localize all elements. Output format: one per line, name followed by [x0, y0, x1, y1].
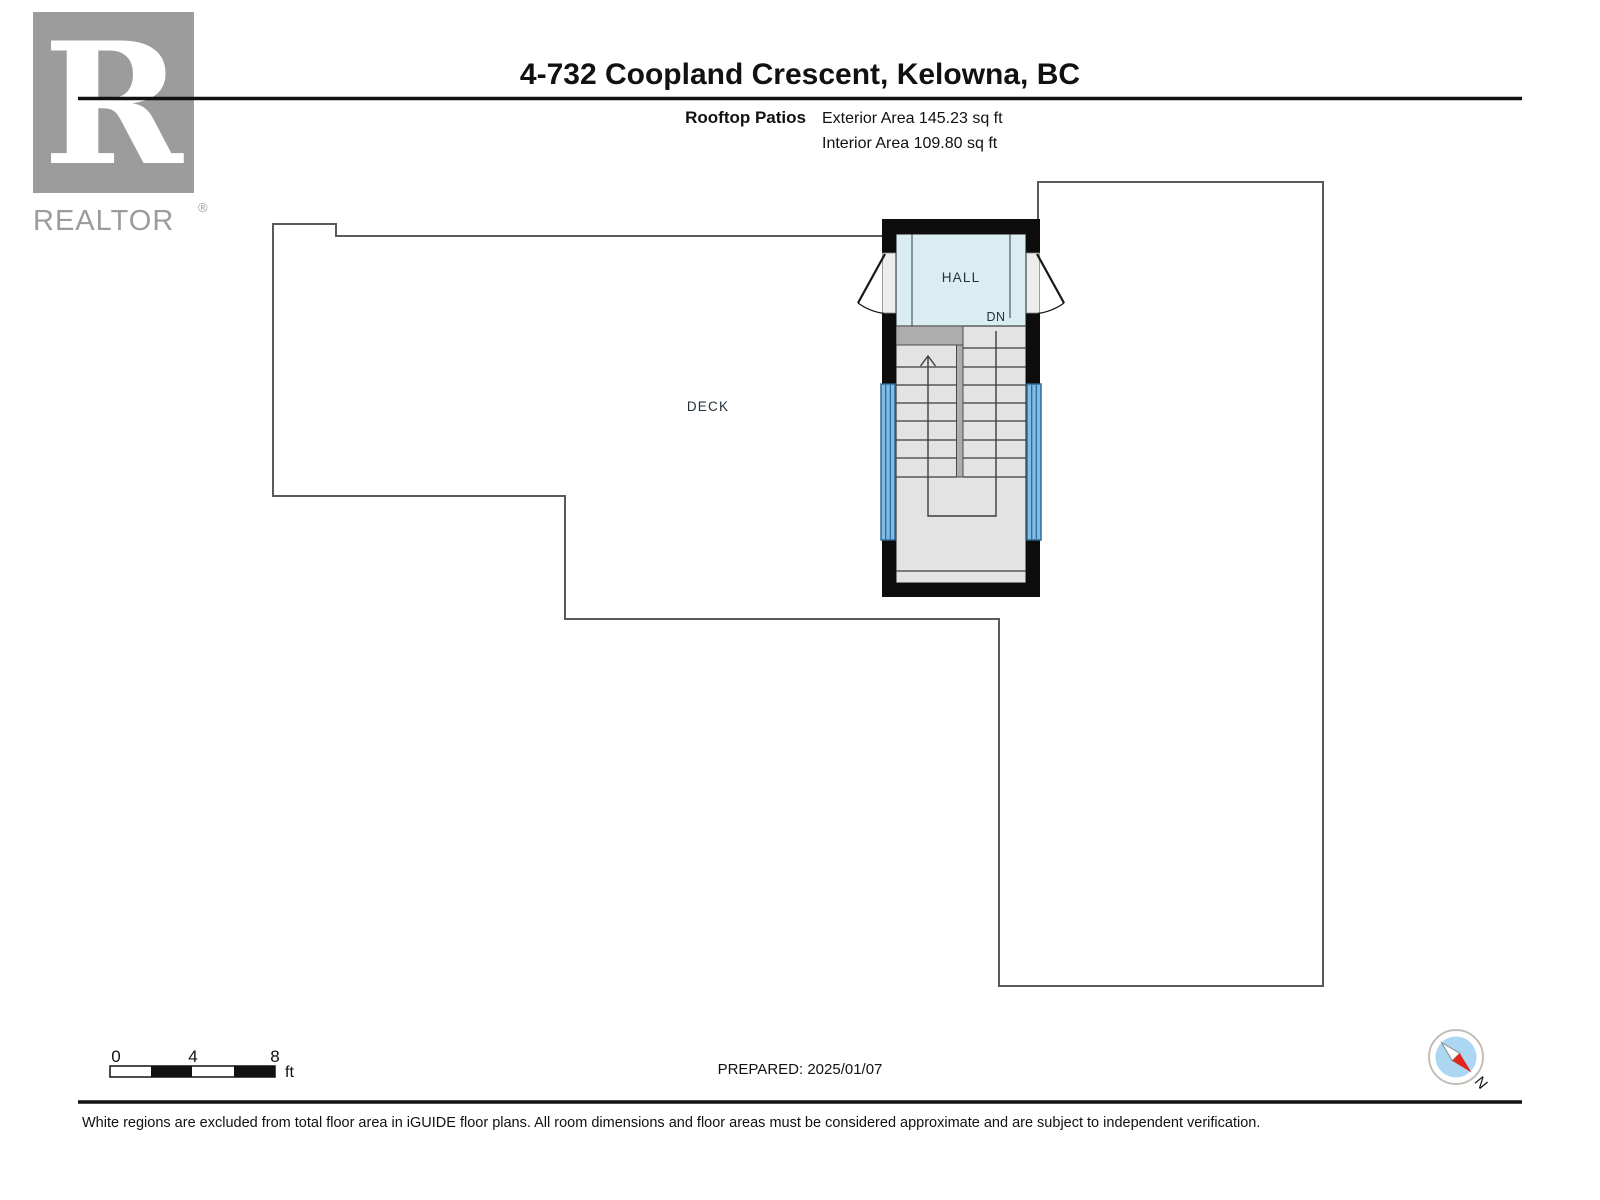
compass-icon: N	[1429, 1030, 1491, 1093]
scale-unit-label: ft	[285, 1064, 294, 1081]
stairs-down-label: DN	[986, 310, 1005, 324]
realtor-logo-letter: R	[43, 5, 184, 203]
window-left	[881, 384, 895, 540]
hall-label: HALL	[942, 270, 981, 285]
scale-bar-segment-dark-1	[151, 1066, 192, 1077]
realtor-brand-text: REALTOR	[33, 205, 174, 237]
deck-outline	[273, 182, 1323, 986]
door-left	[858, 253, 896, 313]
page-title: 4-732 Coopland Crescent, Kelowna, BC	[520, 58, 1080, 91]
disclaimer-text: White regions are excluded from total fl…	[82, 1115, 1260, 1131]
realtor-logo-icon: R REALTOR ®	[33, 5, 208, 237]
door-right	[1027, 253, 1065, 313]
scale-tick-0: 0	[111, 1047, 120, 1066]
footer: 0 4 8 ft PREPARED: 2025/01/07 N White re…	[78, 1030, 1522, 1131]
scale-bar-segment-dark-2	[234, 1066, 275, 1077]
stair-centre-stringer	[957, 345, 964, 477]
stair-top-landing	[896, 326, 963, 345]
floor-plan-page: R REALTOR ® 4-732 Coopland Crescent, Kel…	[0, 0, 1600, 1200]
scale-bar: 0 4 8 ft	[110, 1047, 294, 1081]
interior-area-value: Interior Area 109.80 sq ft	[822, 135, 998, 152]
exterior-area-value: Exterior Area 145.23 sq ft	[822, 110, 1003, 127]
floor-plan-canvas: R REALTOR ® 4-732 Coopland Crescent, Kel…	[0, 0, 1600, 1200]
window-right	[1027, 384, 1041, 540]
prepared-date: PREPARED: 2025/01/07	[718, 1061, 883, 1078]
scale-tick-8: 8	[270, 1047, 279, 1066]
header: R REALTOR ® 4-732 Coopland Crescent, Kel…	[33, 5, 1522, 237]
realtor-registered-mark: ®	[198, 200, 208, 215]
floor-plan: DECK HALL DN	[273, 182, 1323, 986]
floor-name-label: Rooftop Patios	[685, 108, 806, 127]
scale-tick-4: 4	[188, 1047, 197, 1066]
deck-label: DECK	[687, 399, 729, 414]
